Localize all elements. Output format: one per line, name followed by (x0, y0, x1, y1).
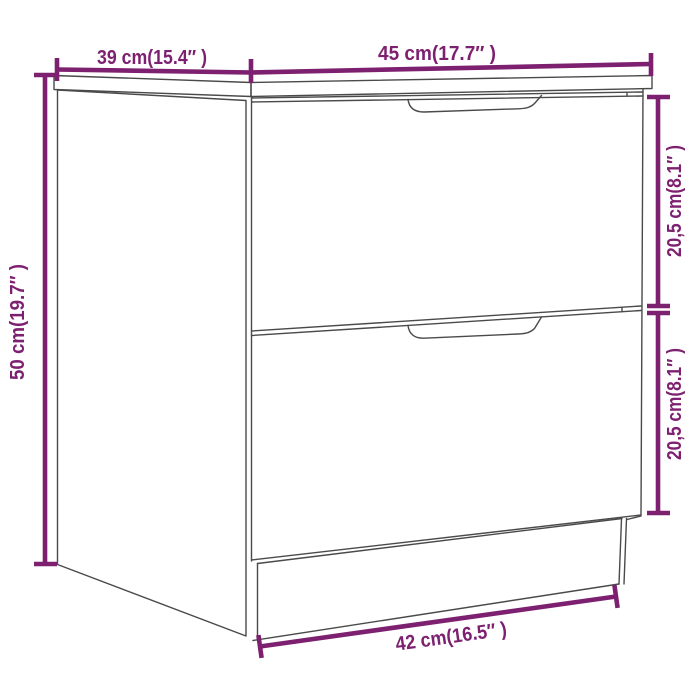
upper-drawer-label: 20,5 cm(8.1″ ) (664, 145, 686, 257)
height-label: 50 cm(19.7″ ) (7, 264, 29, 380)
dimension-base-width: 42 cm(16.5″ ) (258, 585, 617, 658)
drawer-divider (252, 306, 642, 336)
dimension-height: 50 cm(19.7″ ) (7, 75, 57, 564)
dimension-width: 45 cm(17.7″ ) (251, 43, 651, 76)
top-board-side-face (54, 76, 251, 97)
depth-label: 39 cm(15.4″ ) (97, 47, 207, 69)
side-panel (58, 90, 247, 636)
dimension-lower-drawer: 20,5 cm(8.1″ ) (647, 313, 686, 513)
lower-drawer-label: 20,5 cm(8.1″ ) (664, 348, 686, 460)
front-right-edge (641, 89, 643, 515)
diagram-canvas: 39 cm(15.4″ ) 45 cm(17.7″ ) 50 cm(19.7″ … (0, 0, 700, 700)
front-bottom-edge (252, 515, 642, 560)
dimension-diagram: 39 cm(15.4″ ) 45 cm(17.7″ ) 50 cm(19.7″ … (0, 0, 700, 700)
front-top-rail (252, 92, 643, 102)
dimension-depth: 39 cm(15.4″ ) (57, 47, 251, 83)
dimension-upper-drawer: 20,5 cm(8.1″ ) (647, 97, 686, 306)
dimension-annotations: 39 cm(15.4″ ) 45 cm(17.7″ ) 50 cm(19.7″ … (7, 43, 686, 658)
width-label: 45 cm(17.7″ ) (378, 43, 496, 65)
cabinet-drawing (54, 76, 652, 641)
